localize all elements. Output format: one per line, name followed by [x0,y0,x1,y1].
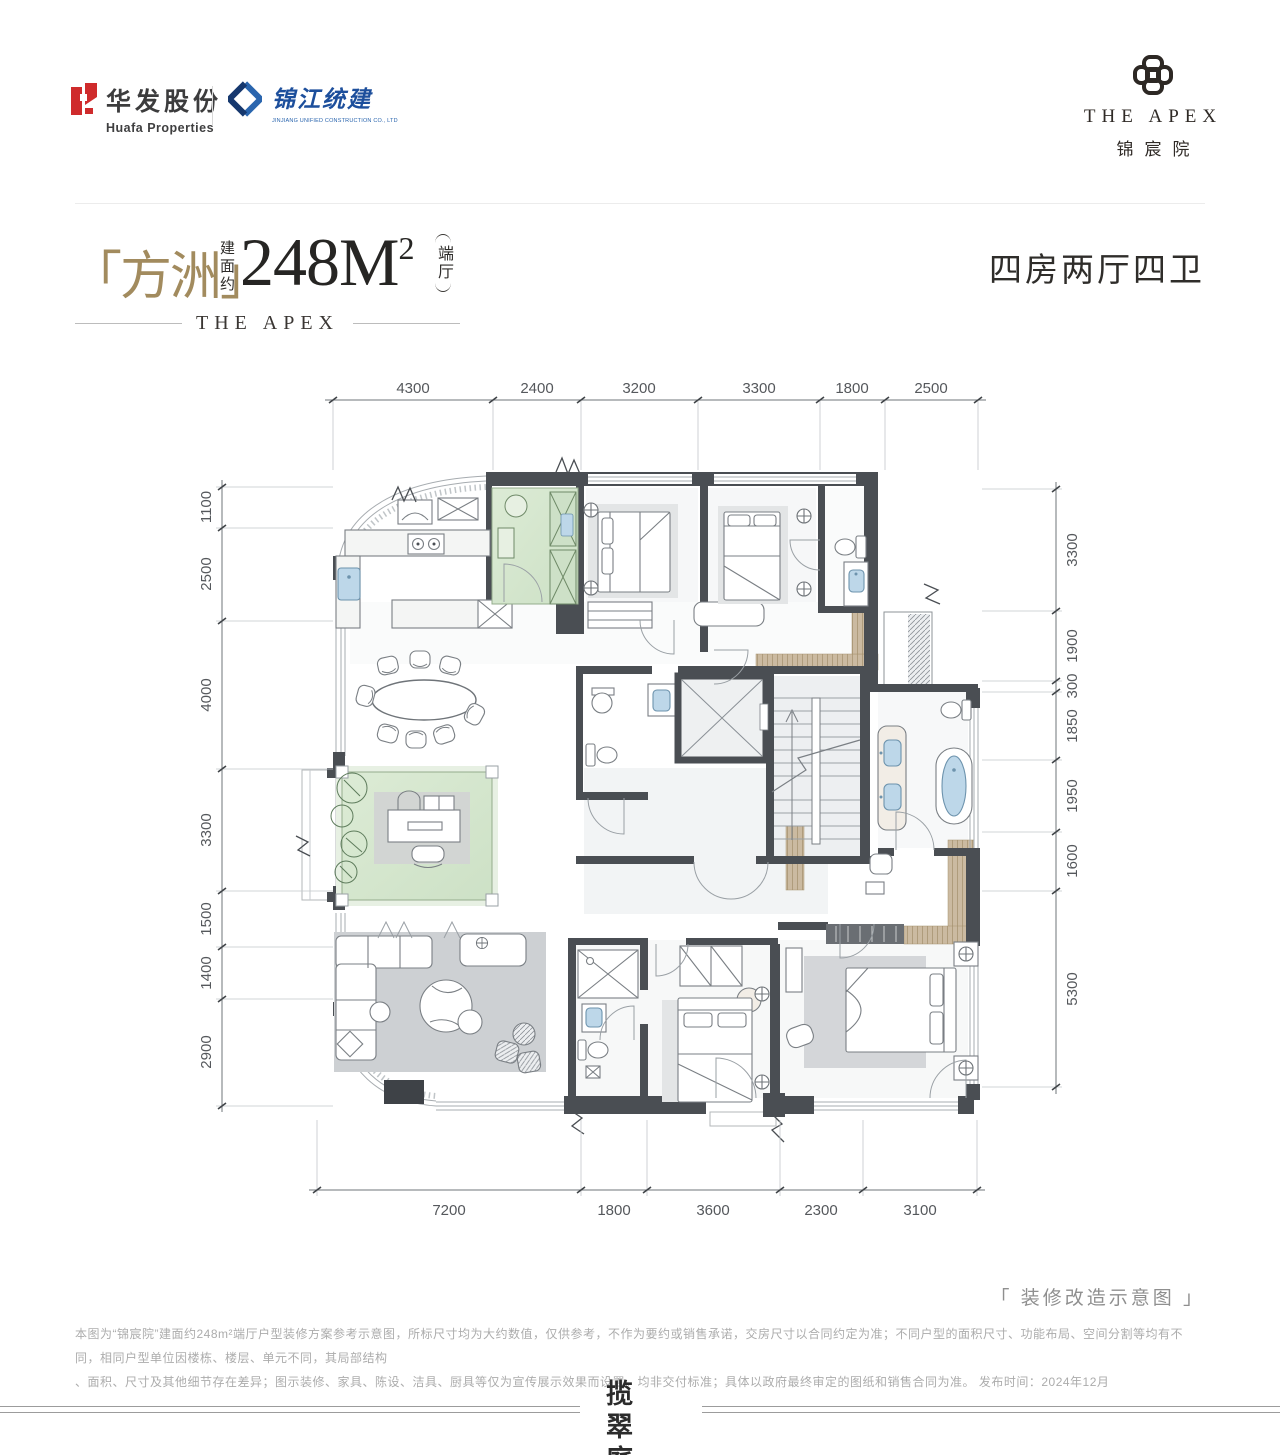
dim-label: 3300 [1064,533,1081,566]
pouf-icon [513,1023,535,1045]
hood-icon [398,500,432,524]
bathtub-icon [936,748,972,824]
renovation-note: 「 装修改造示意图 」 [990,1283,1205,1310]
dim-label: 1950 [1064,779,1081,812]
dim-label: 4000 [198,678,215,711]
toilet-icon [941,700,971,720]
dim-label: 2500 [914,380,947,397]
side-table-icon [370,1002,390,1022]
dim-label: 3200 [622,380,655,397]
toilet-icon [586,744,617,766]
dim-label: 1900 [1064,629,1081,662]
brand-row-2: 庭院 [590,1444,690,1455]
brand-logo: 揽翠 庭院 [590,1378,690,1455]
dim-label: 7200 [432,1202,465,1219]
dim-label: 1800 [835,380,868,397]
dimension-right: 3300 1900 300 1850 1950 1600 5300 [982,482,1081,1094]
hall [866,854,892,894]
dim-label: 1850 [1064,709,1081,742]
stool-icon [505,495,527,517]
dim-label: 300 [1064,673,1081,698]
dimension-top: 4300 2400 3200 3300 1800 2500 [325,380,986,470]
dim-label: 1100 [198,491,215,523]
dim-label: 5300 [1064,972,1081,1005]
dimension-bottom: 7200 1800 3600 2300 3100 [309,1120,985,1219]
toilet-icon [578,1040,608,1060]
dim-label: 3100 [903,1202,936,1219]
dim-label: 1400 [198,956,215,989]
dim-label: 1500 [198,902,215,935]
dresser-icon [786,948,802,992]
pouf-icon [516,1050,541,1074]
bathroom-middle [586,684,676,766]
desk-chair-icon [412,846,444,862]
footer-line-left [0,1406,580,1413]
bedroom-1 [588,504,678,598]
console-table-icon [460,934,526,966]
dim-label: 2400 [520,380,553,397]
basin-icon [592,693,612,713]
kitchen-sink-icon [338,568,360,600]
dining-room [355,651,487,748]
dimension-left: 1100 2500 4000 3300 1500 1400 2900 [198,480,333,1112]
dim-label: 2500 [198,557,215,590]
dim-label: 3600 [696,1202,729,1219]
brand-row-1: 揽翠 [590,1378,690,1444]
footer-line-right [702,1406,1280,1413]
closet-room [492,488,578,604]
chair-icon [870,854,892,874]
dim-label: 4300 [396,380,429,397]
tv-cabinet-icon [384,1080,424,1104]
stove-icon [408,534,444,554]
dim-label: 2900 [198,1035,215,1068]
dim-label: 1600 [1064,844,1081,877]
dining-table-icon [372,680,476,720]
floorplan-poster: 华发股份 Huafa Properties 锦江统建 JINJIANG UNIF… [0,0,1280,1455]
study-room [331,766,498,906]
dim-label: 3300 [742,380,775,397]
disclaimer-line-1: 本图为“锦宸院”建面约248m²端厅户型装修方案参考示意图，所标尺寸均为大约数值… [75,1322,1205,1370]
dim-label: 2300 [804,1202,837,1219]
bedroom-2 [718,506,788,604]
dim-label: 3300 [198,813,215,846]
floor-plan: 4300 2400 3200 3300 1800 2500 7200 1 [0,0,1280,1455]
bench-icon [694,602,764,626]
elevator-icon [678,676,768,760]
dim-label: 1800 [597,1202,630,1219]
side-table-icon [866,882,884,894]
